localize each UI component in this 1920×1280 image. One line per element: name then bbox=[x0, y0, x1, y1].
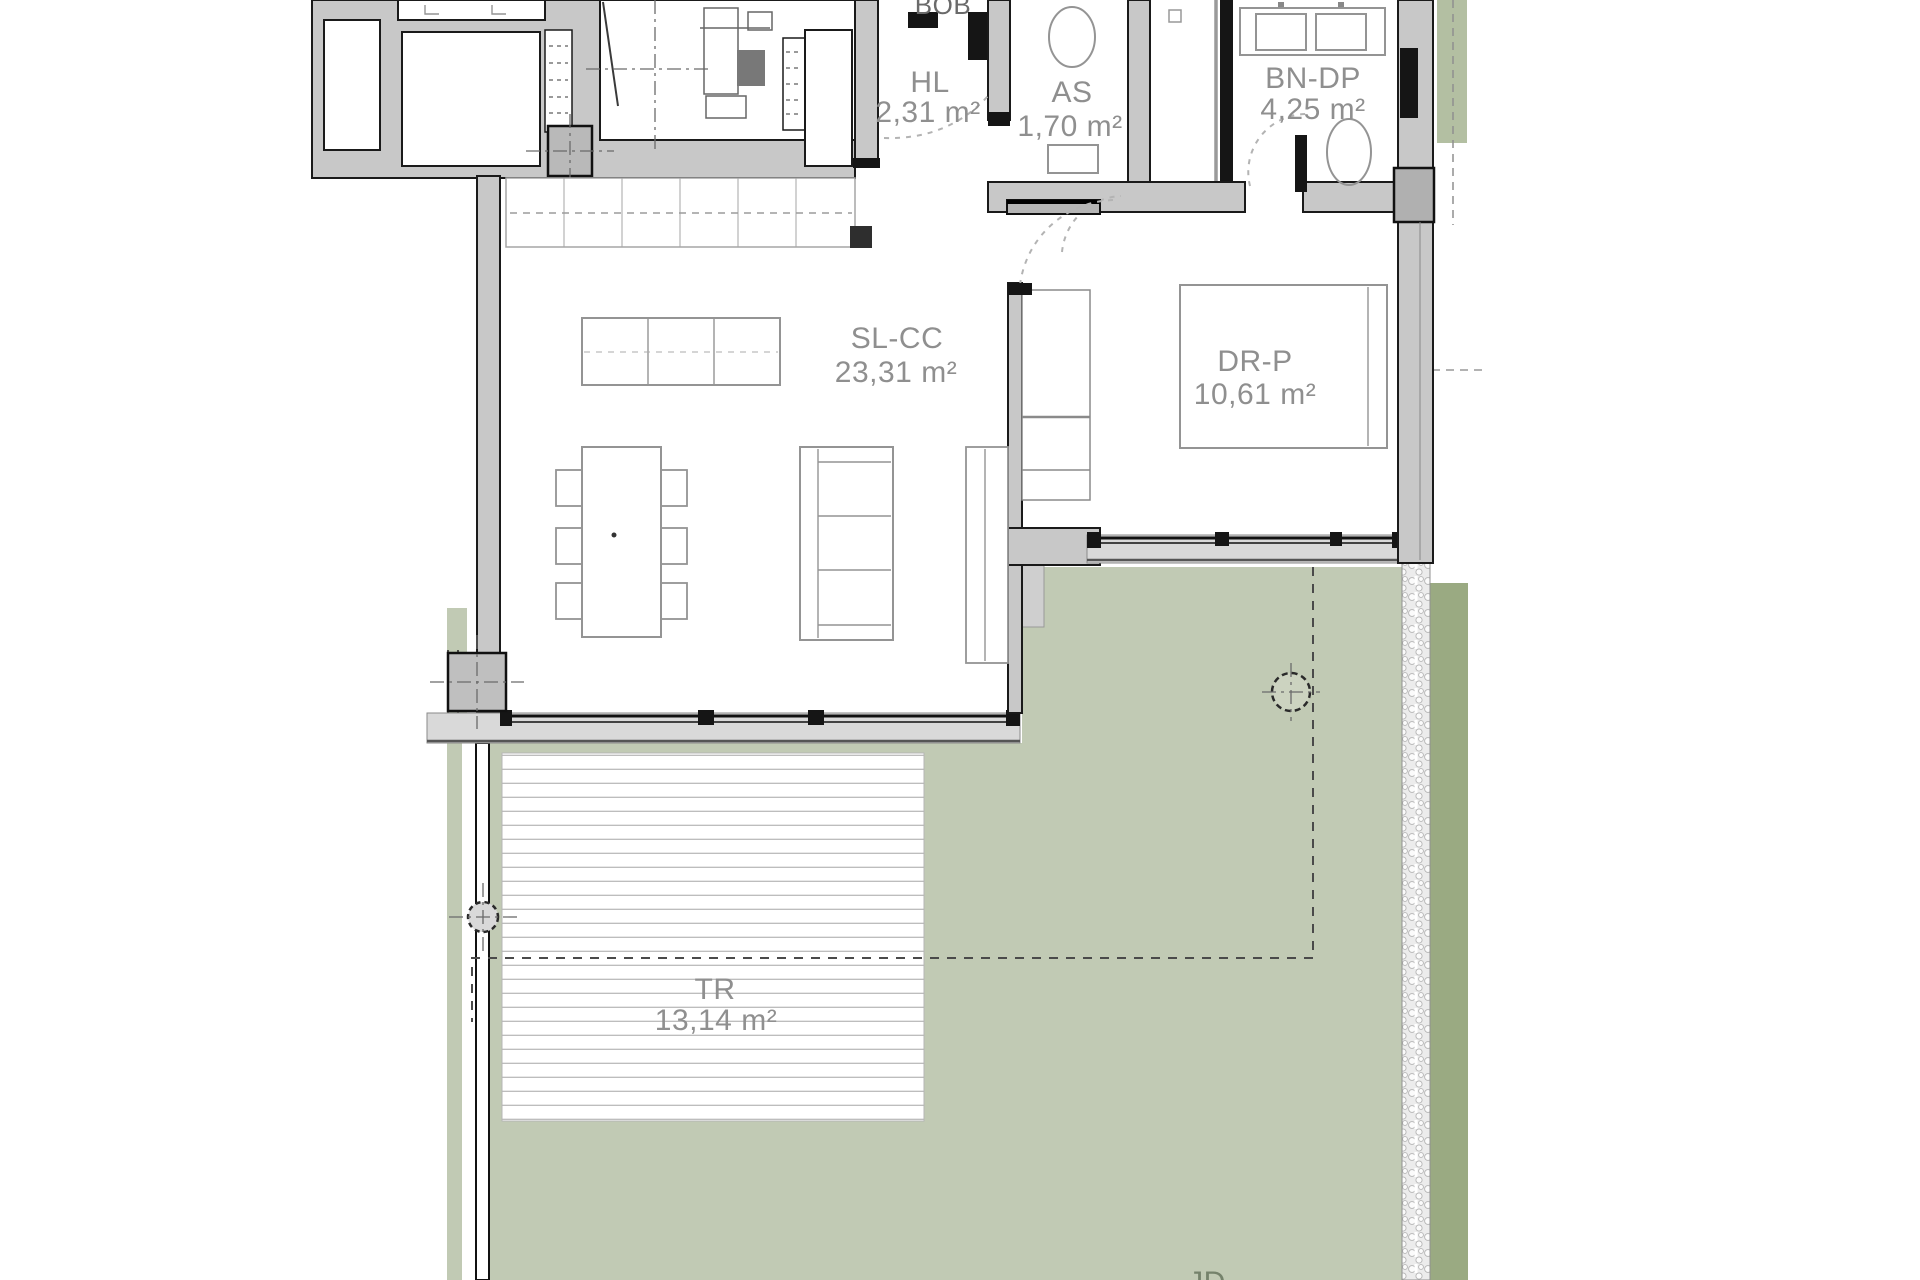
stair-room bbox=[402, 32, 540, 166]
label-bob: BOB bbox=[915, 0, 971, 20]
label-bndp-name: BN-DP bbox=[1265, 62, 1361, 95]
hedge-top-right bbox=[1437, 0, 1467, 143]
label-slcc-name: SL-CC bbox=[851, 322, 944, 355]
garden-right-upper bbox=[1022, 567, 1402, 1280]
label-drp-area: 10,61 m² bbox=[1194, 378, 1316, 411]
as-washbasin bbox=[1049, 7, 1095, 67]
label-tr-name: TR bbox=[695, 973, 736, 1006]
core-right-wall-cap bbox=[853, 158, 880, 168]
sofa bbox=[800, 447, 893, 640]
bn-dp-sink-right bbox=[1316, 14, 1366, 50]
window-mullion-start bbox=[500, 710, 512, 726]
terrace-corner-edging bbox=[1022, 565, 1044, 627]
floor-plan-page: BOB HL 2,31 m² AS 1,70 m² BN-DP 4,25 m² … bbox=[0, 0, 1920, 1280]
label-slcc-area: 23,31 m² bbox=[835, 356, 957, 389]
label-bndp-area: 4,25 m² bbox=[1260, 93, 1365, 126]
tv-sideboard bbox=[966, 447, 1008, 663]
floor-plan: BOB HL 2,31 m² AS 1,70 m² BN-DP 4,25 m² … bbox=[0, 0, 1920, 1280]
boundary-fence bbox=[476, 743, 489, 1280]
kitchen-wall-end-cap bbox=[850, 226, 872, 248]
dining-set bbox=[556, 447, 687, 637]
building-core bbox=[312, 0, 988, 188]
core-room-left bbox=[324, 20, 380, 150]
wood-deck bbox=[502, 753, 924, 1121]
east-wall-window bbox=[1400, 48, 1418, 118]
label-as-name: AS bbox=[1051, 76, 1092, 109]
bn-dp-faucet-left bbox=[1278, 2, 1284, 7]
window-mullion-2 bbox=[808, 710, 824, 725]
wardrobe bbox=[1022, 290, 1090, 500]
dining-table bbox=[582, 447, 661, 637]
shower-head bbox=[1169, 10, 1181, 22]
label-hl-area: 2,31 m² bbox=[875, 96, 980, 129]
bn-dp-door-stub bbox=[1295, 135, 1307, 192]
corner-step-wall bbox=[1008, 528, 1100, 565]
label-as-area: 1,70 m² bbox=[1017, 110, 1122, 143]
as-west-wall bbox=[988, 0, 1010, 120]
label-hl-name: HL bbox=[910, 66, 949, 99]
bedroom-mullion-2 bbox=[1330, 532, 1342, 546]
window-mullion-1 bbox=[698, 710, 714, 725]
wardrobe-wall-cap bbox=[1008, 283, 1032, 295]
core-room-top-sliver bbox=[398, 0, 545, 20]
as-toilet-cistern bbox=[1048, 145, 1098, 173]
bn-dp-faucet-right bbox=[1338, 2, 1344, 7]
fence-channel bbox=[462, 743, 477, 1280]
core-right-wall bbox=[855, 0, 878, 167]
bn-dp-toilet bbox=[1327, 119, 1371, 185]
table-center-dot bbox=[612, 533, 617, 538]
living-west-wall bbox=[477, 176, 500, 713]
living-east-wall bbox=[1008, 283, 1022, 713]
core-room-right bbox=[805, 30, 852, 166]
bn-dp-west-wall bbox=[1220, 0, 1233, 186]
label-drp-name: DR-P bbox=[1217, 345, 1292, 378]
bn-dp-vanity-counter bbox=[1240, 8, 1385, 55]
bn-dp-sink-left bbox=[1256, 14, 1306, 50]
structural-column-east bbox=[1394, 168, 1434, 222]
bedroom-mullion-1 bbox=[1215, 532, 1229, 546]
as-shower-divider-wall bbox=[1128, 0, 1150, 185]
label-jd: JD bbox=[1188, 1266, 1226, 1280]
bedroom-mullion-start bbox=[1087, 532, 1101, 548]
as-door-stub bbox=[988, 112, 1010, 126]
label-tr-area: 13,14 m² bbox=[655, 1004, 777, 1037]
bath-bottom-wall-right bbox=[1303, 182, 1403, 212]
hedge-right bbox=[1430, 583, 1468, 1280]
